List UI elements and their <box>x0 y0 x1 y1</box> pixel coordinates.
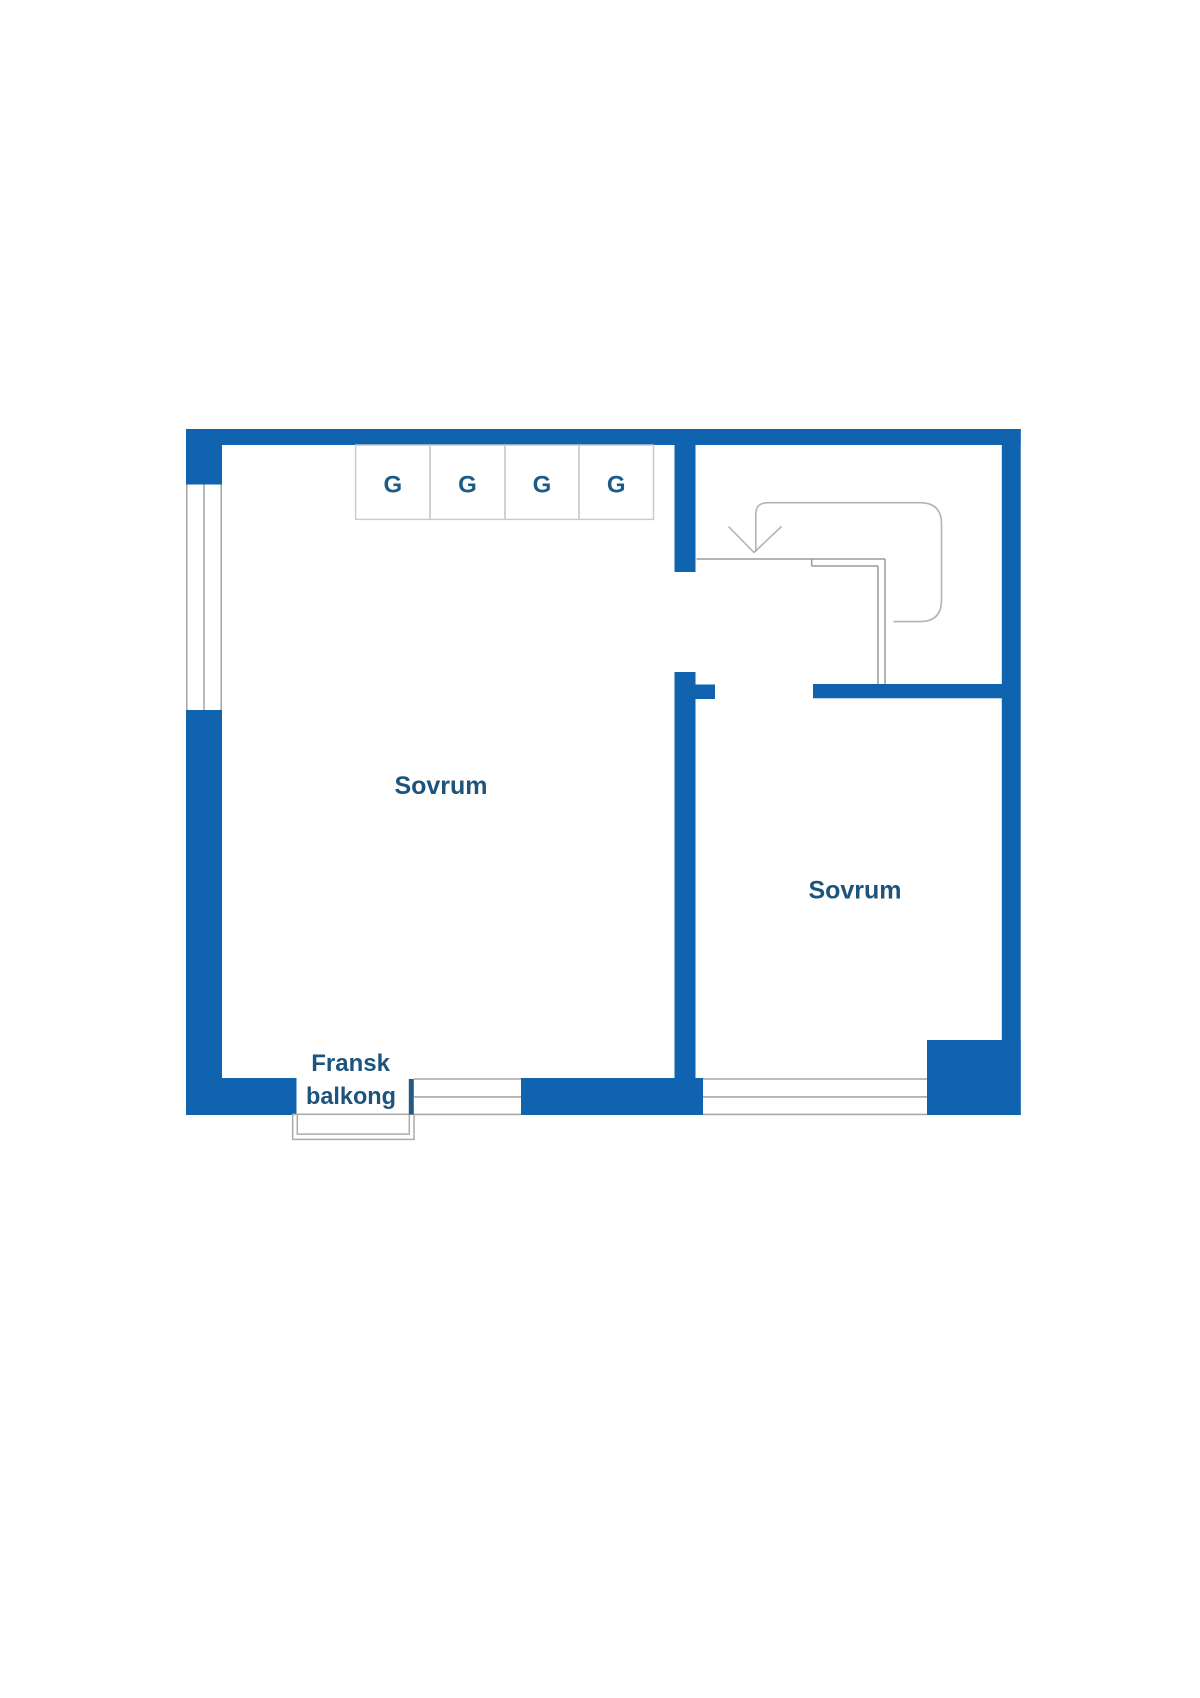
svg-text:G: G <box>458 472 477 499</box>
svg-text:Fransk: Fransk <box>311 1050 390 1077</box>
svg-text:Sovrum: Sovrum <box>394 772 487 800</box>
svg-text:G: G <box>533 472 552 499</box>
svg-text:Sovrum: Sovrum <box>808 877 901 905</box>
svg-text:G: G <box>383 472 402 499</box>
svg-text:G: G <box>607 472 626 499</box>
svg-text:balkong: balkong <box>306 1083 396 1110</box>
